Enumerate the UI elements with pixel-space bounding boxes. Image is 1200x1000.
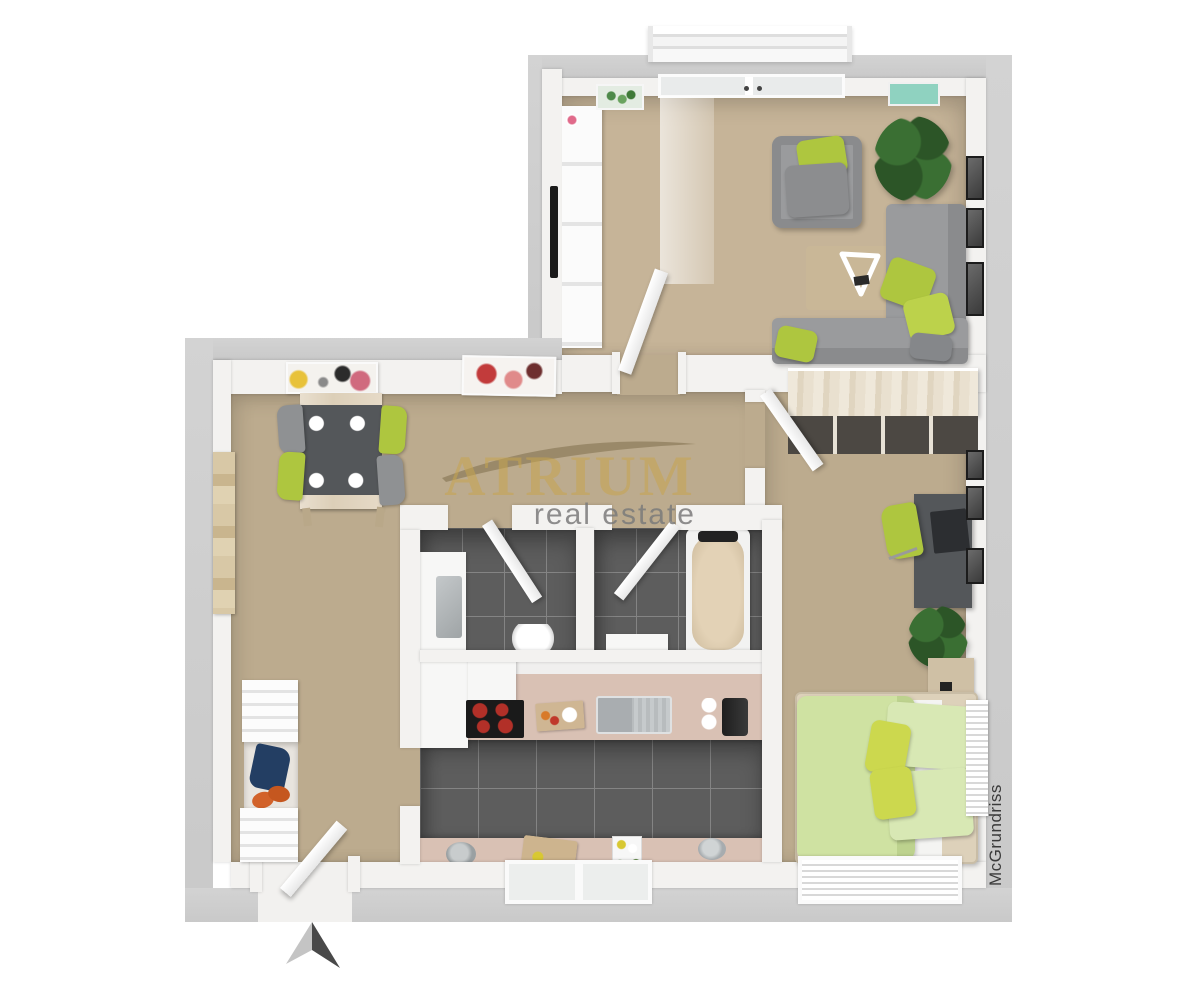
bathtub-headrest [698, 531, 738, 542]
wall-wc-bath-divider [576, 528, 594, 658]
bedroom-doorway-floor [745, 400, 765, 468]
window-handle [744, 86, 749, 91]
dining-chair-gray [376, 454, 405, 506]
dining-chair-green [378, 405, 407, 455]
wc-sink [436, 576, 462, 638]
wardrobe-doors [788, 416, 978, 454]
fridge [420, 658, 468, 748]
cutting-board-food [535, 700, 585, 731]
picture-frame [966, 156, 984, 200]
tripod-coffee-table [834, 248, 886, 300]
wall-kitchen-west-a [400, 530, 420, 748]
dining-chair-gray [276, 404, 305, 454]
tv [550, 186, 558, 278]
wardrobe-top [788, 368, 978, 416]
cooktop [466, 700, 524, 738]
wc-vanity [420, 552, 466, 658]
radiator [966, 700, 988, 816]
abstract-wall-art-1 [286, 362, 378, 394]
dining-table-end [300, 495, 382, 509]
picture-frame [966, 262, 984, 316]
outer-wall-living-west [528, 55, 542, 358]
accent-pillow [869, 765, 918, 820]
teal-wall-art [888, 82, 940, 106]
abstract-wall-art-2 [462, 355, 557, 397]
bathtub-basin [692, 536, 744, 650]
wall-living-south-a [562, 355, 617, 392]
balcony [648, 26, 852, 62]
kitchen-canisters [700, 698, 718, 730]
wall-bedroom-west [762, 520, 782, 862]
armchair [772, 136, 862, 228]
tv-sideboard [562, 106, 602, 348]
coat-rack-bottom-box [240, 808, 298, 862]
wall-kitchen-west-b [400, 806, 420, 864]
picture-frame [966, 548, 984, 584]
kitchen-sink [596, 696, 672, 734]
outer-wall-left [185, 338, 213, 922]
potted-plant [874, 116, 952, 202]
gray-pillow [909, 332, 953, 362]
window-handle [757, 86, 762, 91]
laptop [930, 508, 970, 554]
picture-frame [966, 208, 984, 248]
watermark-tagline: real estate [440, 498, 696, 532]
wall-bath-kitchen-divider [420, 650, 762, 662]
coat-rack-top-box [242, 680, 298, 742]
picture-frame [966, 450, 984, 480]
botanical-wall-art [596, 84, 644, 110]
hall-door-jamb-left [612, 352, 620, 394]
phone [940, 682, 952, 691]
curtain [660, 96, 714, 284]
floor-plan: ATRIUM real estate McGrundriss [0, 0, 1200, 1000]
entry-jamb-right [348, 856, 360, 892]
balcony-window [658, 74, 845, 98]
gray-pillow [784, 162, 849, 218]
bedroom-window-radiator [798, 856, 962, 904]
coffee-machine [722, 698, 748, 736]
hall-door-jamb-right [678, 352, 686, 394]
dining-table-top [300, 405, 382, 497]
kitchen-window [505, 860, 652, 904]
brand-side-label: McGrundriss [986, 760, 1012, 886]
bathtub [686, 528, 750, 658]
dining-chair-green [276, 451, 305, 501]
bowl [698, 838, 726, 860]
north-arrow [278, 916, 348, 972]
picture-frame [966, 486, 984, 520]
flower-vase [566, 114, 578, 126]
kitchen-floor [420, 738, 762, 840]
wall-hanging [213, 452, 235, 614]
